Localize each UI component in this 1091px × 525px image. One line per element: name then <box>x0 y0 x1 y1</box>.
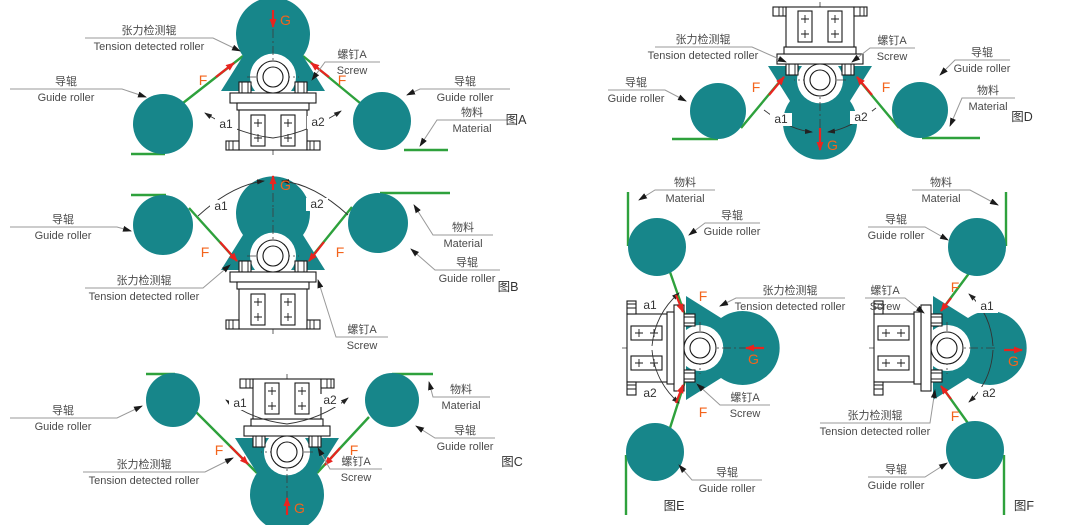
label-screw: 螺钉A Screw <box>318 280 388 352</box>
figure-f: a1 a2 F F G 物料 Material 导辊 Guide roller … <box>820 175 1035 515</box>
figure-title: 图B <box>498 280 519 294</box>
svg-text:Tension detected roller: Tension detected roller <box>94 41 205 53</box>
svg-text:螺钉A: 螺钉A <box>730 391 760 404</box>
diagram-canvas: a1 a2 F F G 张力检测辊 Tension detected rolle… <box>0 0 1091 525</box>
svg-text:Guide roller: Guide roller <box>35 230 92 242</box>
svg-text:张力检测辊: 张力检测辊 <box>763 283 818 297</box>
label-material: 物料 Material <box>429 382 490 412</box>
svg-text:Material: Material <box>968 101 1007 113</box>
svg-text:物料: 物料 <box>452 220 474 234</box>
figure-title: 图E <box>664 499 685 513</box>
label-guide-roller: 导辊 Guide roller <box>868 462 947 492</box>
svg-text:物料: 物料 <box>930 175 952 189</box>
svg-text:Guide roller: Guide roller <box>868 480 925 492</box>
angle-label: a2 <box>982 386 996 400</box>
svg-text:物料: 物料 <box>450 382 472 396</box>
figure-title: 图F <box>1014 499 1035 513</box>
svg-text:导辊: 导辊 <box>971 45 993 59</box>
svg-text:Tension detected roller: Tension detected roller <box>648 50 759 62</box>
guide-roller-circle <box>133 94 193 154</box>
figure-c: a1 a2 F F G 导辊 Guide roller 张力检测辊 Tensio… <box>10 373 523 525</box>
angle-label: a1 <box>233 396 247 410</box>
svg-text:Guide roller: Guide roller <box>699 483 756 495</box>
svg-text:导辊: 导辊 <box>716 465 738 479</box>
figure-d: a1 a2 F F G 张力检测辊 Tension detected rolle… <box>608 2 1033 160</box>
svg-text:Material: Material <box>441 400 480 412</box>
guide-roller-circle <box>948 218 1006 276</box>
svg-text:螺钉A: 螺钉A <box>347 323 377 336</box>
guide-roller-circle <box>628 218 686 276</box>
figure-title: 图A <box>506 113 528 127</box>
guide-roller-circle <box>353 92 411 150</box>
label-material: 物料 Material <box>414 205 493 250</box>
svg-text:螺钉A: 螺钉A <box>337 48 367 61</box>
svg-text:Screw: Screw <box>337 65 368 77</box>
force-label: F <box>951 279 960 295</box>
svg-text:导辊: 导辊 <box>52 403 74 417</box>
svg-text:螺钉A: 螺钉A <box>870 284 900 297</box>
guide-roller-circle <box>892 82 948 138</box>
label-guide-roller: 导辊 Guide roller <box>10 403 142 433</box>
svg-text:Material: Material <box>443 238 482 250</box>
label-tension-roller: 张力检测辊 Tension detected roller <box>85 23 240 53</box>
label-guide-roller: 导辊 Guide roller <box>608 75 686 105</box>
svg-text:Material: Material <box>921 193 960 205</box>
gravity-label: G <box>280 177 291 193</box>
force-label: F <box>215 442 224 458</box>
svg-text:张力检测辊: 张力检测辊 <box>676 32 731 46</box>
angle-label: a1 <box>214 199 228 213</box>
svg-text:Guide roller: Guide roller <box>437 92 494 104</box>
svg-text:螺钉A: 螺钉A <box>877 34 907 47</box>
svg-text:Guide roller: Guide roller <box>954 63 1011 75</box>
svg-text:Screw: Screw <box>347 340 378 352</box>
label-guide-roller: 导辊 Guide roller <box>940 45 1011 75</box>
label-screw: 螺钉A Screw <box>697 384 770 420</box>
label-guide-roller: 导辊 Guide roller <box>868 212 948 242</box>
label-guide-roller: 导辊 Guide roller <box>407 74 510 104</box>
svg-text:物料: 物料 <box>461 105 483 119</box>
gravity-label: G <box>1008 353 1019 369</box>
svg-text:Screw: Screw <box>877 51 908 63</box>
svg-text:Tension detected roller: Tension detected roller <box>735 301 846 313</box>
label-material: 物料 Material <box>950 83 1015 126</box>
angle-label: a1 <box>980 299 994 313</box>
svg-text:Guide roller: Guide roller <box>38 92 95 104</box>
gravity-label: G <box>827 137 838 153</box>
svg-text:导辊: 导辊 <box>454 74 476 88</box>
label-guide-roller: 导辊 Guide roller <box>679 465 762 495</box>
figure-a: a1 a2 F F G 张力检测辊 Tension detected rolle… <box>10 0 527 155</box>
label-guide-roller: 导辊 Guide roller <box>10 74 146 104</box>
label-screw: 螺钉A Screw <box>865 284 924 313</box>
svg-text:导辊: 导辊 <box>55 74 77 88</box>
svg-text:张力检测辊: 张力检测辊 <box>117 457 172 471</box>
svg-text:Material: Material <box>452 123 491 135</box>
gravity-label: G <box>748 351 759 367</box>
label-tension-roller: 张力检测辊 Tension detected roller <box>85 265 230 303</box>
svg-text:张力检测辊: 张力检测辊 <box>848 408 903 422</box>
guide-roller-circle <box>365 373 419 427</box>
label-tension-roller: 张力检测辊 Tension detected roller <box>820 390 935 438</box>
force-label: F <box>699 288 708 304</box>
svg-text:Guide roller: Guide roller <box>437 441 494 453</box>
svg-text:Screw: Screw <box>730 408 761 420</box>
gravity-label: G <box>280 12 291 28</box>
guide-roller-circle <box>146 373 200 427</box>
angle-label: a2 <box>310 197 324 211</box>
label-guide-roller: 导辊 Guide roller <box>411 249 500 285</box>
svg-text:Guide roller: Guide roller <box>35 421 92 433</box>
svg-text:导辊: 导辊 <box>52 212 74 226</box>
svg-text:导辊: 导辊 <box>454 423 476 437</box>
svg-text:导辊: 导辊 <box>885 212 907 226</box>
label-guide-roller: 导辊 Guide roller <box>10 212 131 242</box>
label-guide-roller: 导辊 Guide roller <box>416 423 495 453</box>
angle-label: a2 <box>311 115 325 129</box>
guide-roller-circle <box>626 423 684 481</box>
guide-roller-circle <box>348 193 408 253</box>
label-tension-roller: 张力检测辊 Tension detected roller <box>720 283 846 313</box>
label-material: 物料 Material <box>912 175 998 205</box>
force-label: F <box>201 244 210 260</box>
svg-text:张力检测辊: 张力检测辊 <box>122 23 177 37</box>
guide-roller-circle <box>690 83 746 139</box>
gravity-label: G <box>294 500 305 516</box>
force-label: F <box>951 408 960 424</box>
guide-roller-circle <box>946 421 1004 479</box>
svg-text:Material: Material <box>665 193 704 205</box>
svg-text:张力检测辊: 张力检测辊 <box>117 273 172 287</box>
label-tension-roller: 张力检测辊 Tension detected roller <box>83 457 233 487</box>
svg-text:螺钉A: 螺钉A <box>341 455 371 468</box>
svg-text:Guide roller: Guide roller <box>868 230 925 242</box>
diagram-page: a1 a2 F F G 张力检测辊 Tension detected rolle… <box>0 0 1091 525</box>
force-label: F <box>699 404 708 420</box>
label-material: 物料 Material <box>639 175 715 205</box>
svg-text:Tension detected roller: Tension detected roller <box>89 291 200 303</box>
figure-e: a1 a2 F F G 物料 Material 导辊 Guide roller … <box>622 175 846 515</box>
svg-text:Guide roller: Guide roller <box>608 93 665 105</box>
force-label: F <box>199 72 208 88</box>
svg-text:Guide roller: Guide roller <box>439 273 496 285</box>
svg-text:Screw: Screw <box>870 301 901 313</box>
svg-text:Screw: Screw <box>341 472 372 484</box>
svg-text:导辊: 导辊 <box>456 255 478 269</box>
svg-text:Tension detected roller: Tension detected roller <box>89 475 200 487</box>
angle-label: a2 <box>854 110 868 124</box>
force-label: F <box>882 79 891 95</box>
force-label: F <box>336 244 345 260</box>
svg-text:Guide roller: Guide roller <box>704 226 761 238</box>
svg-text:Tension detected roller: Tension detected roller <box>820 426 931 438</box>
svg-text:导辊: 导辊 <box>625 75 647 89</box>
force-label: F <box>752 79 761 95</box>
figure-b: a1 a2 F F G 导辊 Guide roller 张力检测辊 Tensio… <box>10 176 518 352</box>
angle-label: a1 <box>774 112 788 126</box>
angle-label: a1 <box>643 298 657 312</box>
guide-roller-circle <box>133 195 193 255</box>
svg-text:物料: 物料 <box>977 83 999 97</box>
svg-text:导辊: 导辊 <box>721 208 743 222</box>
figure-title: 图D <box>1011 110 1033 124</box>
label-tension-roller: 张力检测辊 Tension detected roller <box>648 32 786 62</box>
label-screw: 螺钉A Screw <box>312 48 380 80</box>
angle-label: a1 <box>219 117 233 131</box>
angle-label: a2 <box>323 393 337 407</box>
label-guide-roller: 导辊 Guide roller <box>689 208 761 238</box>
svg-text:物料: 物料 <box>674 175 696 189</box>
figure-title: 图C <box>501 455 523 469</box>
label-material: 物料 Material <box>420 105 508 146</box>
svg-text:导辊: 导辊 <box>885 462 907 476</box>
angle-label: a2 <box>643 386 657 400</box>
